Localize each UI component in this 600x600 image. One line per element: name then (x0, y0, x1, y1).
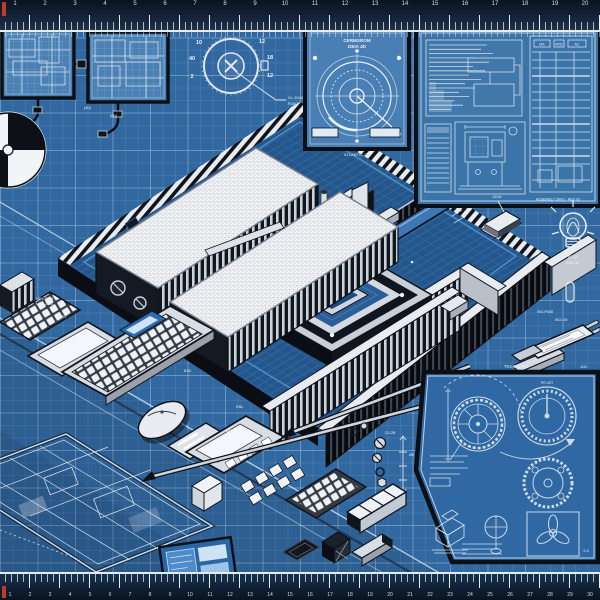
ruler-number: 16 (300, 592, 320, 599)
dial-number: 18 (267, 55, 273, 61)
ruler-number: 26 (500, 592, 520, 599)
label-usb: ISO-19 (555, 317, 568, 322)
ruler-number: 6 (150, 1, 180, 8)
ruler-number: 8 (210, 1, 240, 8)
ruler-number: 3 (60, 1, 90, 8)
ruler-number: 25 (480, 592, 500, 599)
ruler-number: 27 (520, 592, 540, 599)
capsule (566, 282, 574, 302)
ruler-number: 14 (260, 592, 280, 599)
dial-number: 2 (190, 74, 193, 80)
label-kbl: KBL (236, 404, 244, 409)
ruler-number: 15 (420, 1, 450, 8)
dial-number: 40 (189, 56, 195, 62)
ruler-number: 7 (120, 592, 140, 599)
label-kb: 618 (184, 368, 191, 373)
schematic-panel-b (88, 32, 168, 102)
label-wire-a: (40) (84, 105, 92, 110)
ruler-number: 4 (90, 1, 120, 8)
drawing-panel: MA 4051 AC ASSEMBLY DWG - REV 03 (416, 28, 600, 206)
ruler-top: 1234567891011121314151617181920 (0, 0, 600, 32)
drawing-header: MA (539, 43, 545, 47)
ruler-number: 11 (300, 1, 330, 8)
ruler-red-marker (2, 2, 6, 16)
detail-dial-label: PR-30T (541, 381, 554, 385)
ruler-number: 3 (40, 592, 60, 599)
ruler-number: 23 (440, 592, 460, 599)
ruler-number: 10 (180, 592, 200, 599)
detail-title: T9-0912 P05 (504, 364, 529, 369)
dial-number: 10 (196, 40, 202, 46)
ruler-number: 4 (60, 592, 80, 599)
drawing-header: 4051 (555, 43, 563, 47)
label-wire-b: (00) (110, 113, 118, 118)
ruler-number: 5 (120, 1, 150, 8)
drawing-header: AC (575, 43, 580, 47)
ruler-number: 16 (450, 1, 480, 8)
ruler-number: 28 (540, 592, 560, 599)
ruler-number: 11 (200, 592, 220, 599)
dial-label: XL-2040 (288, 95, 304, 100)
label-bulb-2: A06-4B (567, 261, 580, 265)
ruler-number: 22 (420, 592, 440, 599)
gauge-title: DEIA 4D (348, 44, 367, 49)
gauge-badge: C-044 (380, 132, 390, 136)
label-part-left-2: MFD-2005 (36, 302, 53, 306)
label-tag: ISO-P008 (537, 310, 553, 314)
ruler-number: 8 (140, 592, 160, 599)
ruler-number: 18 (510, 1, 540, 8)
ruler-number: 12 (220, 592, 240, 599)
label-pad: 650 (226, 428, 233, 433)
ruler-number: 24 (460, 592, 480, 599)
gauge-panel: CERMSROM DEIA 4D A-19 C-044 ATLANTIC-CD (305, 28, 409, 157)
dial-number: 12 (267, 73, 273, 79)
ruler-number: 15 (280, 592, 300, 599)
ruler-number: 19 (540, 1, 570, 8)
ruler-number: 14 (390, 1, 420, 8)
detail-fan-label: S-3 (583, 549, 589, 553)
label-screw-dim: Ø6 (409, 453, 414, 457)
label-part-left-1: MFX-P208 (36, 297, 53, 301)
dimension-bracket (399, 436, 407, 493)
ruler-number: 2 (20, 592, 40, 599)
ruler-number: 2 (30, 1, 60, 8)
ruler-number: 21 (400, 592, 420, 599)
ruler-top-fringe (0, 32, 600, 37)
ruler-number: 7 (180, 1, 210, 8)
ruler-number: 10 (270, 1, 300, 8)
gauge-title: CERMSROM (343, 38, 370, 43)
schematic-panel-a (2, 30, 74, 98)
ruler-number: 13 (360, 1, 390, 8)
ruler-bottom-numbers: 1234567891011121314151617181920212223242… (0, 592, 600, 599)
label-bulb-1: 47 Q3 (568, 255, 578, 259)
ruler-number: 6 (100, 592, 120, 599)
label-chip: 4018 (493, 194, 503, 199)
dial-number: 12 (259, 39, 265, 45)
ruler-number: 13 (240, 592, 260, 599)
ruler-red-marker (2, 586, 6, 598)
detail-panel: T9-0912 P05 AXL PR-30T S-3 (416, 364, 598, 562)
ruler-number: 19 (360, 592, 380, 599)
ruler-number: 12 (330, 1, 360, 8)
gauge-caption: ATLANTIC-CD (344, 152, 370, 157)
registration-mark (0, 113, 45, 187)
ruler-number: 30 (580, 592, 600, 599)
label-screw-top: CU-2B (385, 431, 396, 435)
ruler-number: 9 (240, 1, 270, 8)
ruler-number: 9 (160, 592, 180, 599)
ruler-number: 5 (80, 592, 100, 599)
ruler-number: 18 (340, 592, 360, 599)
ruler-number: 17 (320, 592, 340, 599)
ruler-bottom: 1234567891011121314151617181920212223242… (0, 572, 600, 600)
ruler-number: 20 (380, 592, 400, 599)
ruler-number: 29 (560, 592, 580, 599)
label-angle: 1757 (58, 314, 68, 319)
ruler-number: 17 (480, 1, 510, 8)
ruler-number: 20 (570, 1, 600, 8)
detail-side-label: AXL (580, 365, 587, 369)
blueprint-canvas: 2 40 10 16 18 10 12 18 12 XL-2040 R1609 (0, 0, 600, 600)
gauge-badge: A-19 (321, 132, 329, 136)
blueprint-scene: 2 40 10 16 18 10 12 18 12 XL-2040 R1609 (0, 0, 600, 600)
ruler-top-numbers: 1234567891011121314151617181920 (0, 1, 600, 8)
